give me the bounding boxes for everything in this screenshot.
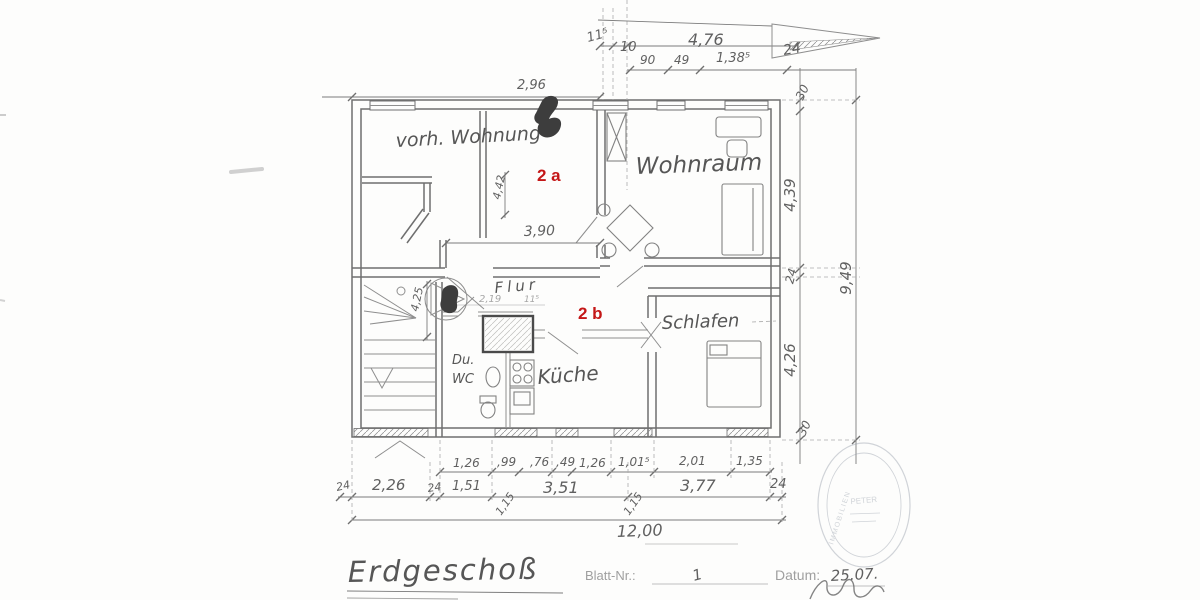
bottom-wall-windows xyxy=(354,429,768,437)
schlafen-label-leader xyxy=(752,321,776,322)
room-label-flur: Flur xyxy=(494,275,540,297)
scanned-floor-plan: 11⁵ 10 4,76 90 49 1,38⁵ 24 2,96 30 4,39 … xyxy=(0,0,1200,600)
dim-b1-6: 2,01 xyxy=(679,454,706,468)
stamp-rim-text: IMMOBILIEN xyxy=(828,490,852,546)
dim-b2-5: 3,77 xyxy=(680,476,716,495)
dim-right-426: 4,26 xyxy=(781,343,799,376)
dim-top-90: 90 xyxy=(640,53,656,67)
dim-top-476: 4,76 xyxy=(688,30,724,49)
office-stamp: IMMOBILIEN PETER xyxy=(818,443,910,567)
dim-top-10: 10 xyxy=(620,40,637,55)
dim-b2-3: 1,51 xyxy=(452,479,481,494)
schlafen-furniture xyxy=(707,341,761,407)
room-label-du: Du. xyxy=(452,353,474,368)
dim-diag-0: 1,15 xyxy=(493,490,518,518)
handwritten-mark-top xyxy=(534,96,561,138)
dim-b2-6: 24 xyxy=(770,477,787,492)
title-block: Erdgeschoß Blatt-Nr.: 1 Datum: 25.07. xyxy=(347,552,885,599)
dim-b1-2: ,76 xyxy=(530,455,549,469)
bathroom-fixtures xyxy=(480,367,500,418)
title-underline xyxy=(347,591,563,593)
dim-diag-1: 1,15 xyxy=(621,490,646,518)
room-label-kueche: Küche xyxy=(537,361,600,389)
room-label-schlafen: Schlafen xyxy=(661,310,739,334)
floor-plan-drawing: 11⁵ 10 4,76 90 49 1,38⁵ 24 2,96 30 4,39 … xyxy=(0,0,1200,600)
dim-b1-4: 1,26 xyxy=(579,456,606,470)
shower-cubicle xyxy=(483,316,533,352)
dim-b1-3: ,49 xyxy=(556,455,575,469)
dim-right-30-top: 30 xyxy=(793,82,812,102)
room-label-wc: WC xyxy=(452,372,475,387)
drawing-title: Erdgeschoß xyxy=(348,552,539,589)
dim-top-49: 49 xyxy=(674,53,689,67)
dim-b1-7: 1,35 xyxy=(736,454,763,468)
dim-right-24: 24 xyxy=(782,267,799,285)
sofa-bed xyxy=(722,184,763,255)
dim-b2-4: 3,51 xyxy=(543,478,579,497)
unit-label-2a: 2 a xyxy=(537,166,561,185)
kitchen-fixtures xyxy=(510,360,534,414)
dim-top-24: 24 xyxy=(782,40,802,59)
bed xyxy=(707,341,761,407)
dim-b2-1: 2,26 xyxy=(372,476,405,494)
sheet-number-label: Blatt-Nr.: xyxy=(585,568,636,583)
dim-right-949: 9,49 xyxy=(837,261,855,294)
dim-top-offset: 11⁵ xyxy=(585,26,610,46)
dim-b1-5: 1,01⁵ xyxy=(618,455,650,469)
dim-inner-115: 11⁵ xyxy=(524,295,539,305)
dim-b2-0: 24 xyxy=(335,478,351,494)
stair-direction-arrow xyxy=(371,368,393,388)
dim-inner-390: 3,90 xyxy=(524,223,556,240)
toilet-bowl xyxy=(481,402,495,418)
pillow xyxy=(710,345,727,355)
unit-label-2b: 2 b xyxy=(578,304,603,323)
cupboard xyxy=(716,117,761,137)
stamp-center-text: PETER xyxy=(850,495,878,506)
entrance-mark xyxy=(375,441,425,458)
dim-total-1200: 12,00 xyxy=(616,520,662,541)
dining-table xyxy=(598,204,659,257)
wohnraum-furniture xyxy=(598,113,763,257)
room-label-wohnraum: Wohnraum xyxy=(635,150,762,180)
washbasin xyxy=(486,367,500,387)
dim-top-138: 1,38⁵ xyxy=(716,51,750,66)
date-value: 25.07. xyxy=(830,565,879,585)
sheet-number-value: 1 xyxy=(690,565,704,585)
dim-top-296: 2,96 xyxy=(517,78,546,93)
date-label: Datum: xyxy=(775,567,820,583)
dim-right-30-bottom: 30 xyxy=(795,418,814,438)
dim-right-439: 4,39 xyxy=(781,178,799,211)
dim-b1-1: ,99 xyxy=(497,455,516,469)
wardrobe xyxy=(607,113,626,161)
room-label-vorh-wohnung: vorh. Wohnung xyxy=(395,122,541,152)
dim-inner-425: 4,25 xyxy=(408,286,426,313)
dim-b2-2: 24 xyxy=(427,480,443,495)
dim-b1-0: 1,26 xyxy=(453,456,480,470)
